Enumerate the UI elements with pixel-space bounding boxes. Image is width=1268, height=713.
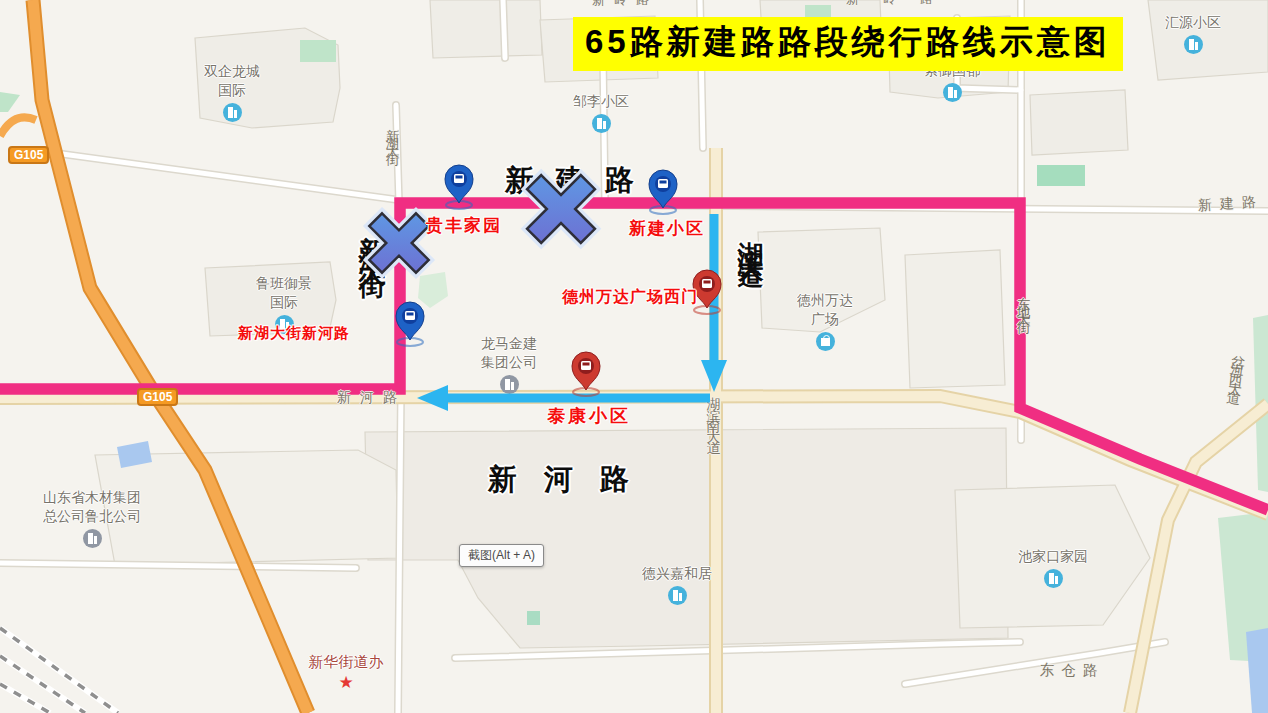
poi-shuangqi-longcheng: 双企龙城 国际 <box>204 62 260 122</box>
poi-label: 邹李小区 <box>573 93 629 109</box>
poi-chijiakou: 池家口家园 <box>1018 547 1088 588</box>
poi-xinhua-office: 新华街道办 <box>309 652 384 671</box>
poi-label: 山东省木材集团 <box>43 489 141 505</box>
poi-label: 广场 <box>811 311 839 327</box>
poi-label: 总公司鲁北公司 <box>43 508 141 524</box>
page-title: 65路新建路路段绕行路线示意图 <box>573 17 1123 71</box>
road-label-dongdi-dajie: 东地大街 <box>1014 286 1032 318</box>
poi-label: 龙马金建 <box>481 335 537 351</box>
road-label-top-partial-2: 新岭路 <box>846 0 957 8</box>
building-icon <box>592 114 611 133</box>
road-label-xinhe: 新河路 <box>337 389 406 407</box>
road-label-xinhu-dajie: 新湖大街 <box>383 118 401 150</box>
poi-label: 新华街道办 <box>309 653 384 670</box>
poi-label: 国际 <box>218 82 246 98</box>
map-canvas[interactable] <box>0 0 1268 713</box>
poi-label: 汇源小区 <box>1165 14 1221 30</box>
poi-label: 双企龙城 <box>204 63 260 79</box>
building-icon <box>668 586 687 605</box>
factory-icon <box>500 375 519 394</box>
poi-label: 池家口家园 <box>1018 548 1088 564</box>
shopping-icon <box>816 332 835 351</box>
poi-longma-jinjian: 龙马金建 集团公司 <box>481 334 537 394</box>
road-label-dongcang: 东仓路 <box>1040 661 1105 680</box>
road-label-top-partial-1: 新岭路 <box>592 0 658 9</box>
street-annotation-xinjian: 新建路 <box>505 161 655 201</box>
poi-zouli: 邹李小区 <box>573 92 629 133</box>
poi-dexing-jiaheju: 德兴嘉和居 <box>642 564 712 605</box>
detour-map-page: { "title": {"text": "65路新建路路段绕行路线示意图"}, … <box>0 0 1268 713</box>
screenshot-button[interactable]: 截图(Alt + A) <box>459 544 544 567</box>
stop-label-wanda-west-gate: 德州万达广场西门 <box>562 287 698 308</box>
street-annotation-hubin: 湖滨大道 <box>734 221 769 249</box>
building-icon <box>223 103 242 122</box>
street-annotation-xinhe: 新河路 <box>488 460 656 500</box>
poi-shandong-timber: 山东省木材集团 总公司鲁北公司 <box>43 488 141 548</box>
poi-label: 国际 <box>270 294 298 310</box>
building-icon <box>1044 569 1063 588</box>
stop-label-guifeng: 贵丰家园 <box>426 214 502 237</box>
stop-label-xinjian-xiaoqu: 新建小区 <box>629 217 705 240</box>
poi-label: 鲁班御景 <box>256 275 312 291</box>
poi-huiyuan: 汇源小区 <box>1165 13 1221 54</box>
g105-badge-west: G105 <box>8 146 49 164</box>
poi-label: 集团公司 <box>481 354 537 370</box>
road-label-hubin-nan-dadao: 湖滨南大道 <box>705 386 723 441</box>
star-icon: ★ <box>338 672 353 693</box>
building-icon <box>1184 35 1203 54</box>
factory-icon <box>83 529 102 548</box>
stop-label-taikang: 泰康小区 <box>547 404 631 428</box>
building-icon <box>943 83 962 102</box>
street-annotation-xinhu: 新湖大街 <box>354 214 390 262</box>
poi-wanda-plaza: 德州万达 广场 <box>797 291 853 351</box>
g105-badge-south: G105 <box>137 388 178 406</box>
poi-label: 德兴嘉和居 <box>642 565 712 581</box>
stop-label-xinhu-xinhe: 新湖大街新河路 <box>238 324 350 343</box>
poi-label: 德州万达 <box>797 292 853 308</box>
